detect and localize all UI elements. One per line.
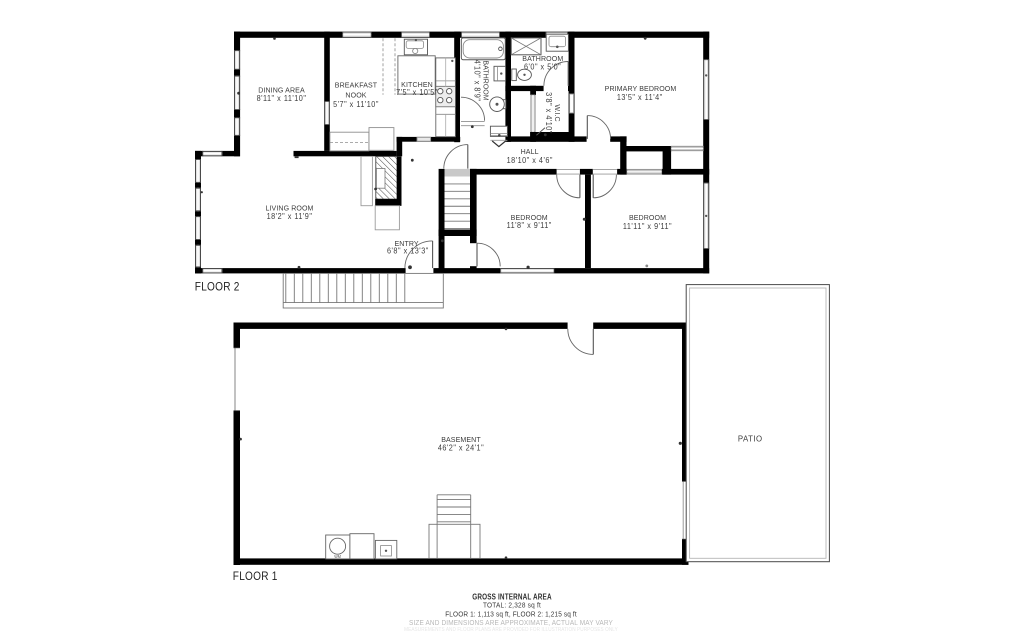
svg-text:BATHROOM: BATHROOM <box>481 60 490 100</box>
svg-text:46'2" x 24'1": 46'2" x 24'1" <box>438 443 484 452</box>
svg-text:W.I.C: W.I.C <box>553 104 562 122</box>
svg-text:18'10" x 4'6": 18'10" x 4'6" <box>507 156 553 165</box>
svg-text:SIZE AND DIMENSIONS ARE APPROX: SIZE AND DIMENSIONS ARE APPROXIMATE, ACT… <box>409 620 613 627</box>
svg-text:11'8" x 9'11": 11'8" x 9'11" <box>507 221 552 230</box>
svg-text:18'2" x 11'9": 18'2" x 11'9" <box>267 212 313 221</box>
svg-text:NOOK: NOOK <box>345 90 366 99</box>
svg-text:7'5" x 10'5": 7'5" x 10'5" <box>396 88 438 97</box>
svg-text:11'11" x 9'11": 11'11" x 9'11" <box>623 222 672 231</box>
svg-text:6'8" x 13'3": 6'8" x 13'3" <box>387 246 429 255</box>
svg-text:TOTAL: 2,328 sq ft: TOTAL: 2,328 sq ft <box>483 602 541 609</box>
svg-text:WM: WM <box>334 554 341 559</box>
svg-text:PATIO: PATIO <box>738 434 763 443</box>
svg-text:GROSS INTERNAL AREA: GROSS INTERNAL AREA <box>472 592 552 602</box>
svg-text:BREAKFAST: BREAKFAST <box>335 80 378 89</box>
svg-text:FLOOR 2: FLOOR 2 <box>195 280 240 293</box>
svg-text:13'5" x 11'4": 13'5" x 11'4" <box>617 93 663 102</box>
svg-text:3'8" x 4'10": 3'8" x 4'10" <box>544 92 553 134</box>
svg-text:FLOOR 1: FLOOR 1 <box>233 570 278 583</box>
svg-text:FLOOR 1: 1,113 sq ft, FLOOR 2:: FLOOR 1: 1,113 sq ft, FLOOR 2: 1,215 sq … <box>445 611 577 618</box>
svg-text:5'7" x 11'10": 5'7" x 11'10" <box>333 100 379 109</box>
svg-text:4'10" x 8'9": 4'10" x 8'9" <box>472 60 481 102</box>
svg-text:8'11" x 11'10": 8'11" x 11'10" <box>257 94 307 103</box>
svg-text:6'0" x 5'0": 6'0" x 5'0" <box>524 62 561 71</box>
svg-text:MEASUREMENTS AND FLOOR PLANS A: MEASUREMENTS AND FLOOR PLANS ARE PROVIDE… <box>404 627 618 633</box>
